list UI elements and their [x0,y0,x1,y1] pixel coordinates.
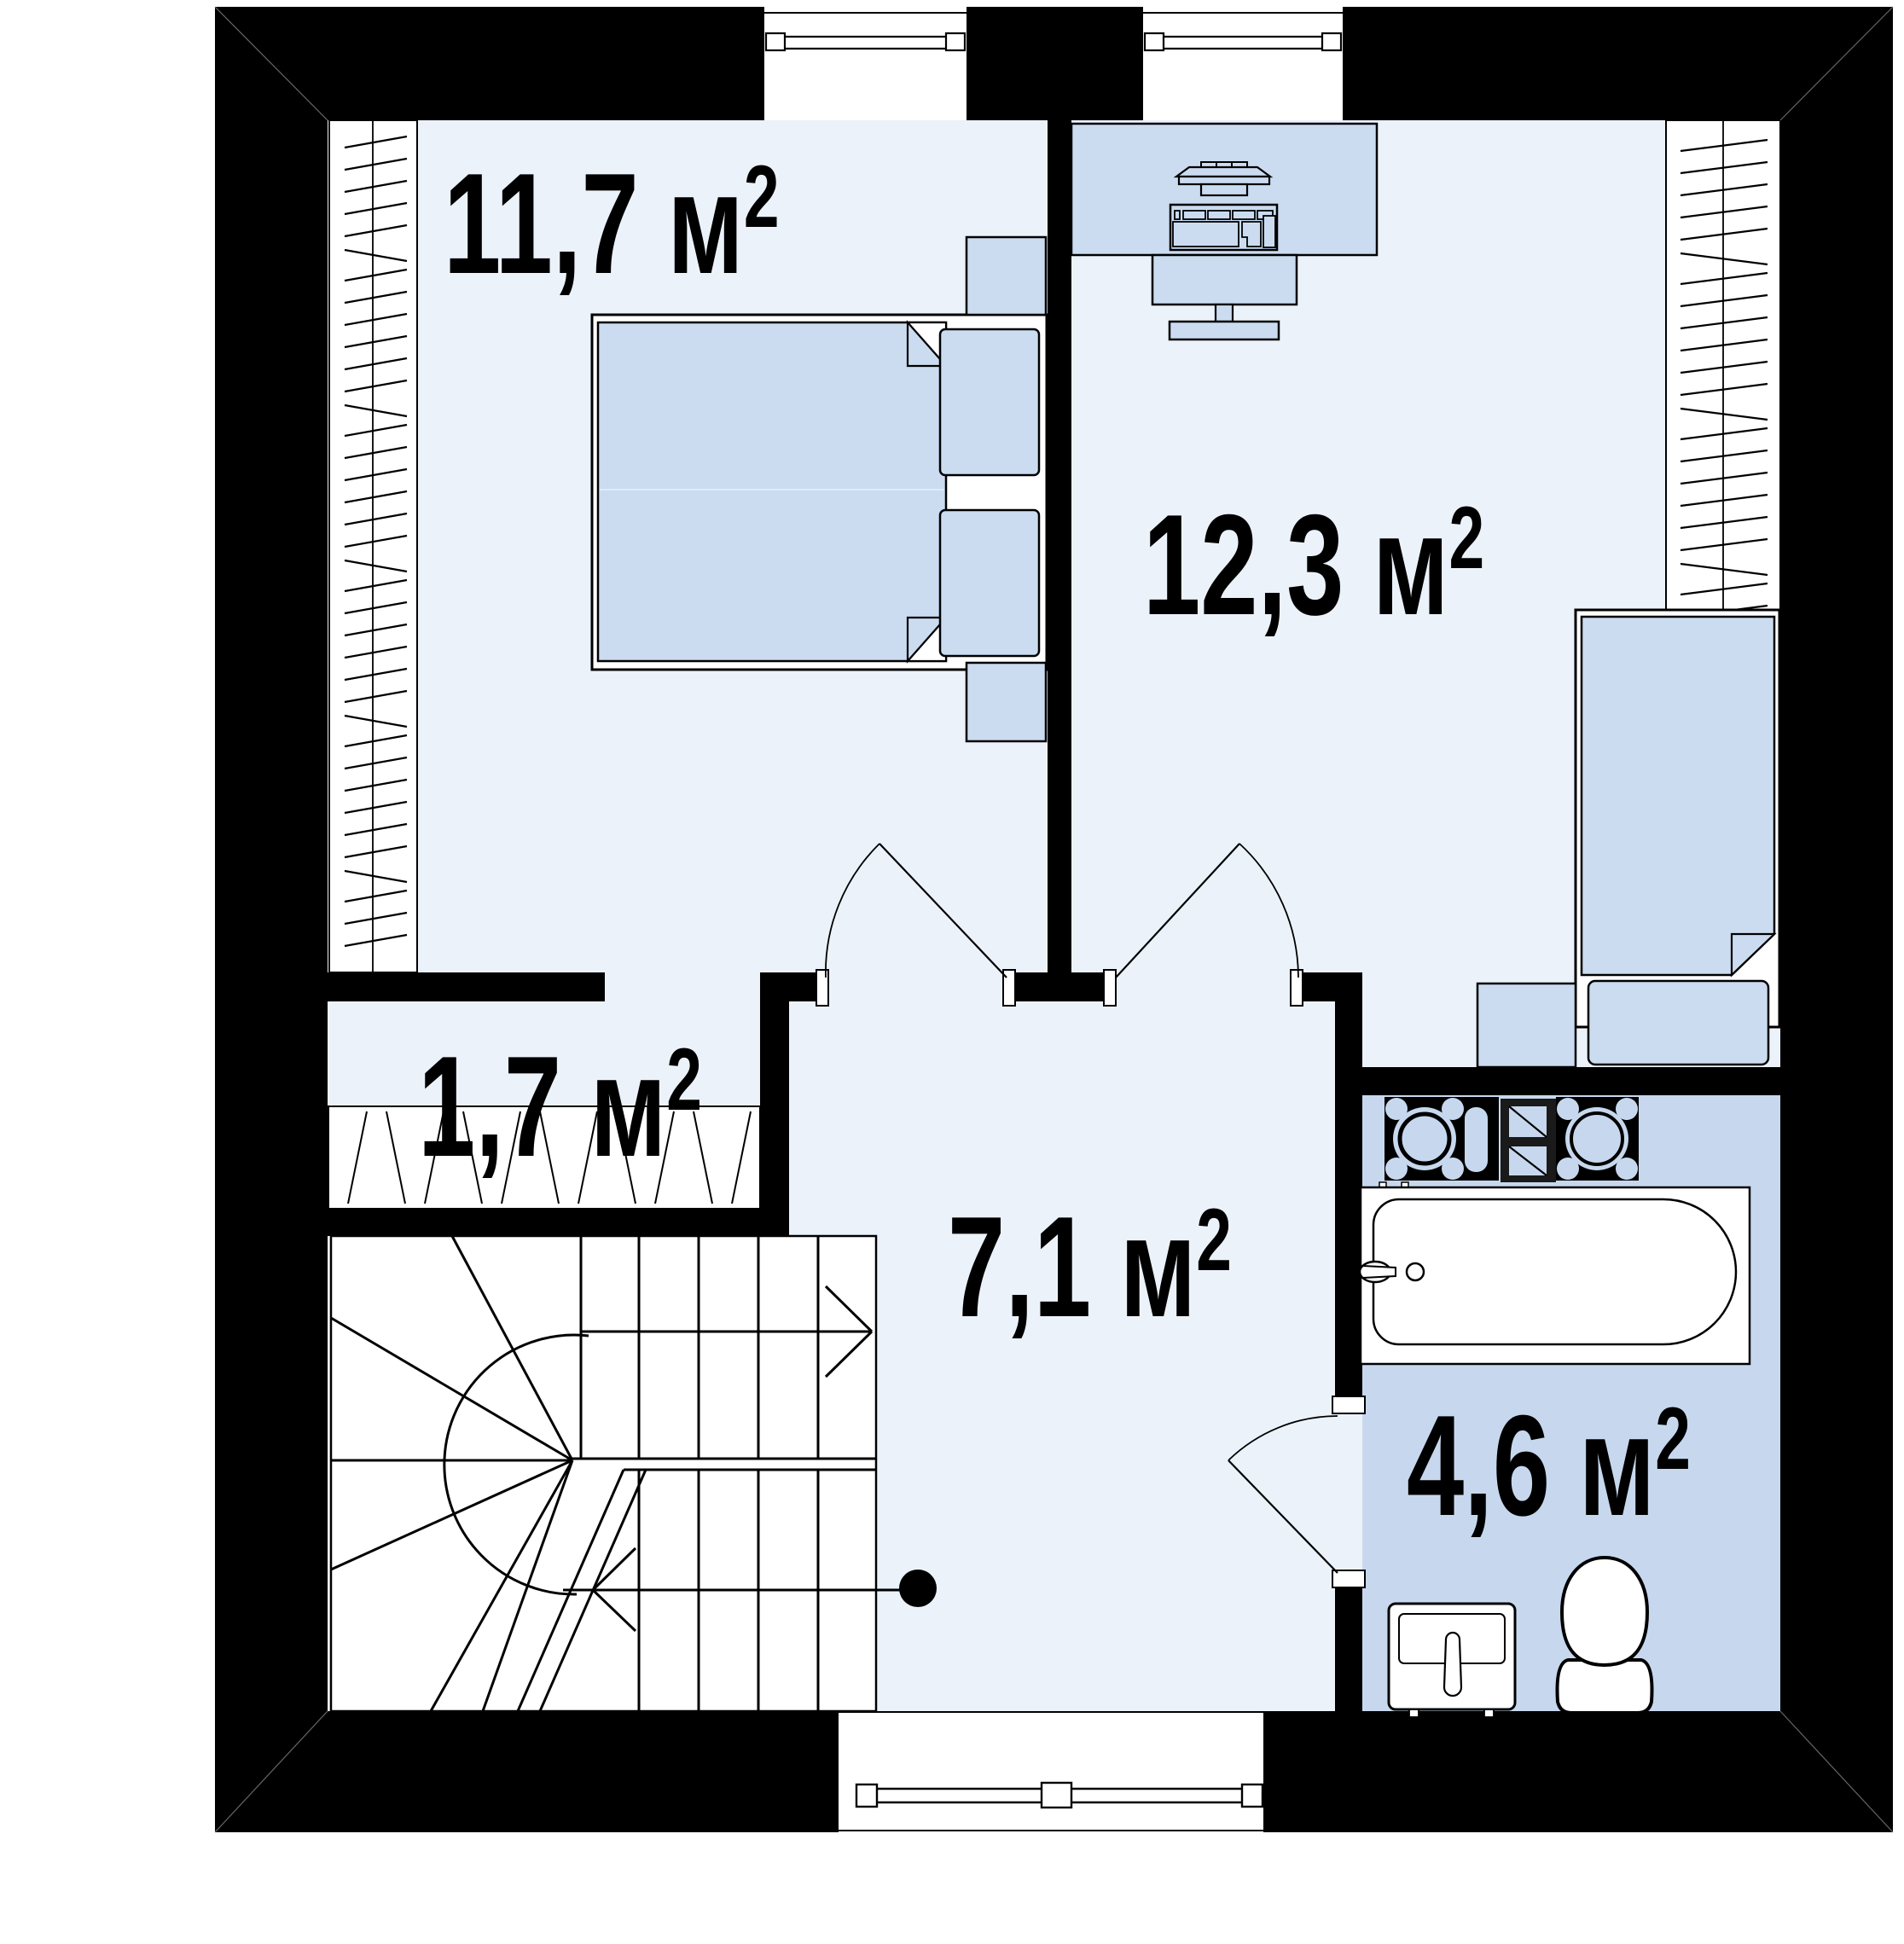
svg-text:11,7 м2: 11,7 м2 [444,144,779,305]
svg-text:4,6 м2: 4,6 м2 [1407,1386,1691,1546]
svg-text:7,1 м2: 7,1 м2 [948,1187,1232,1348]
svg-text:12,3 м2: 12,3 м2 [1143,485,1484,646]
svg-text:1,7 м2: 1,7 м2 [418,1027,702,1187]
